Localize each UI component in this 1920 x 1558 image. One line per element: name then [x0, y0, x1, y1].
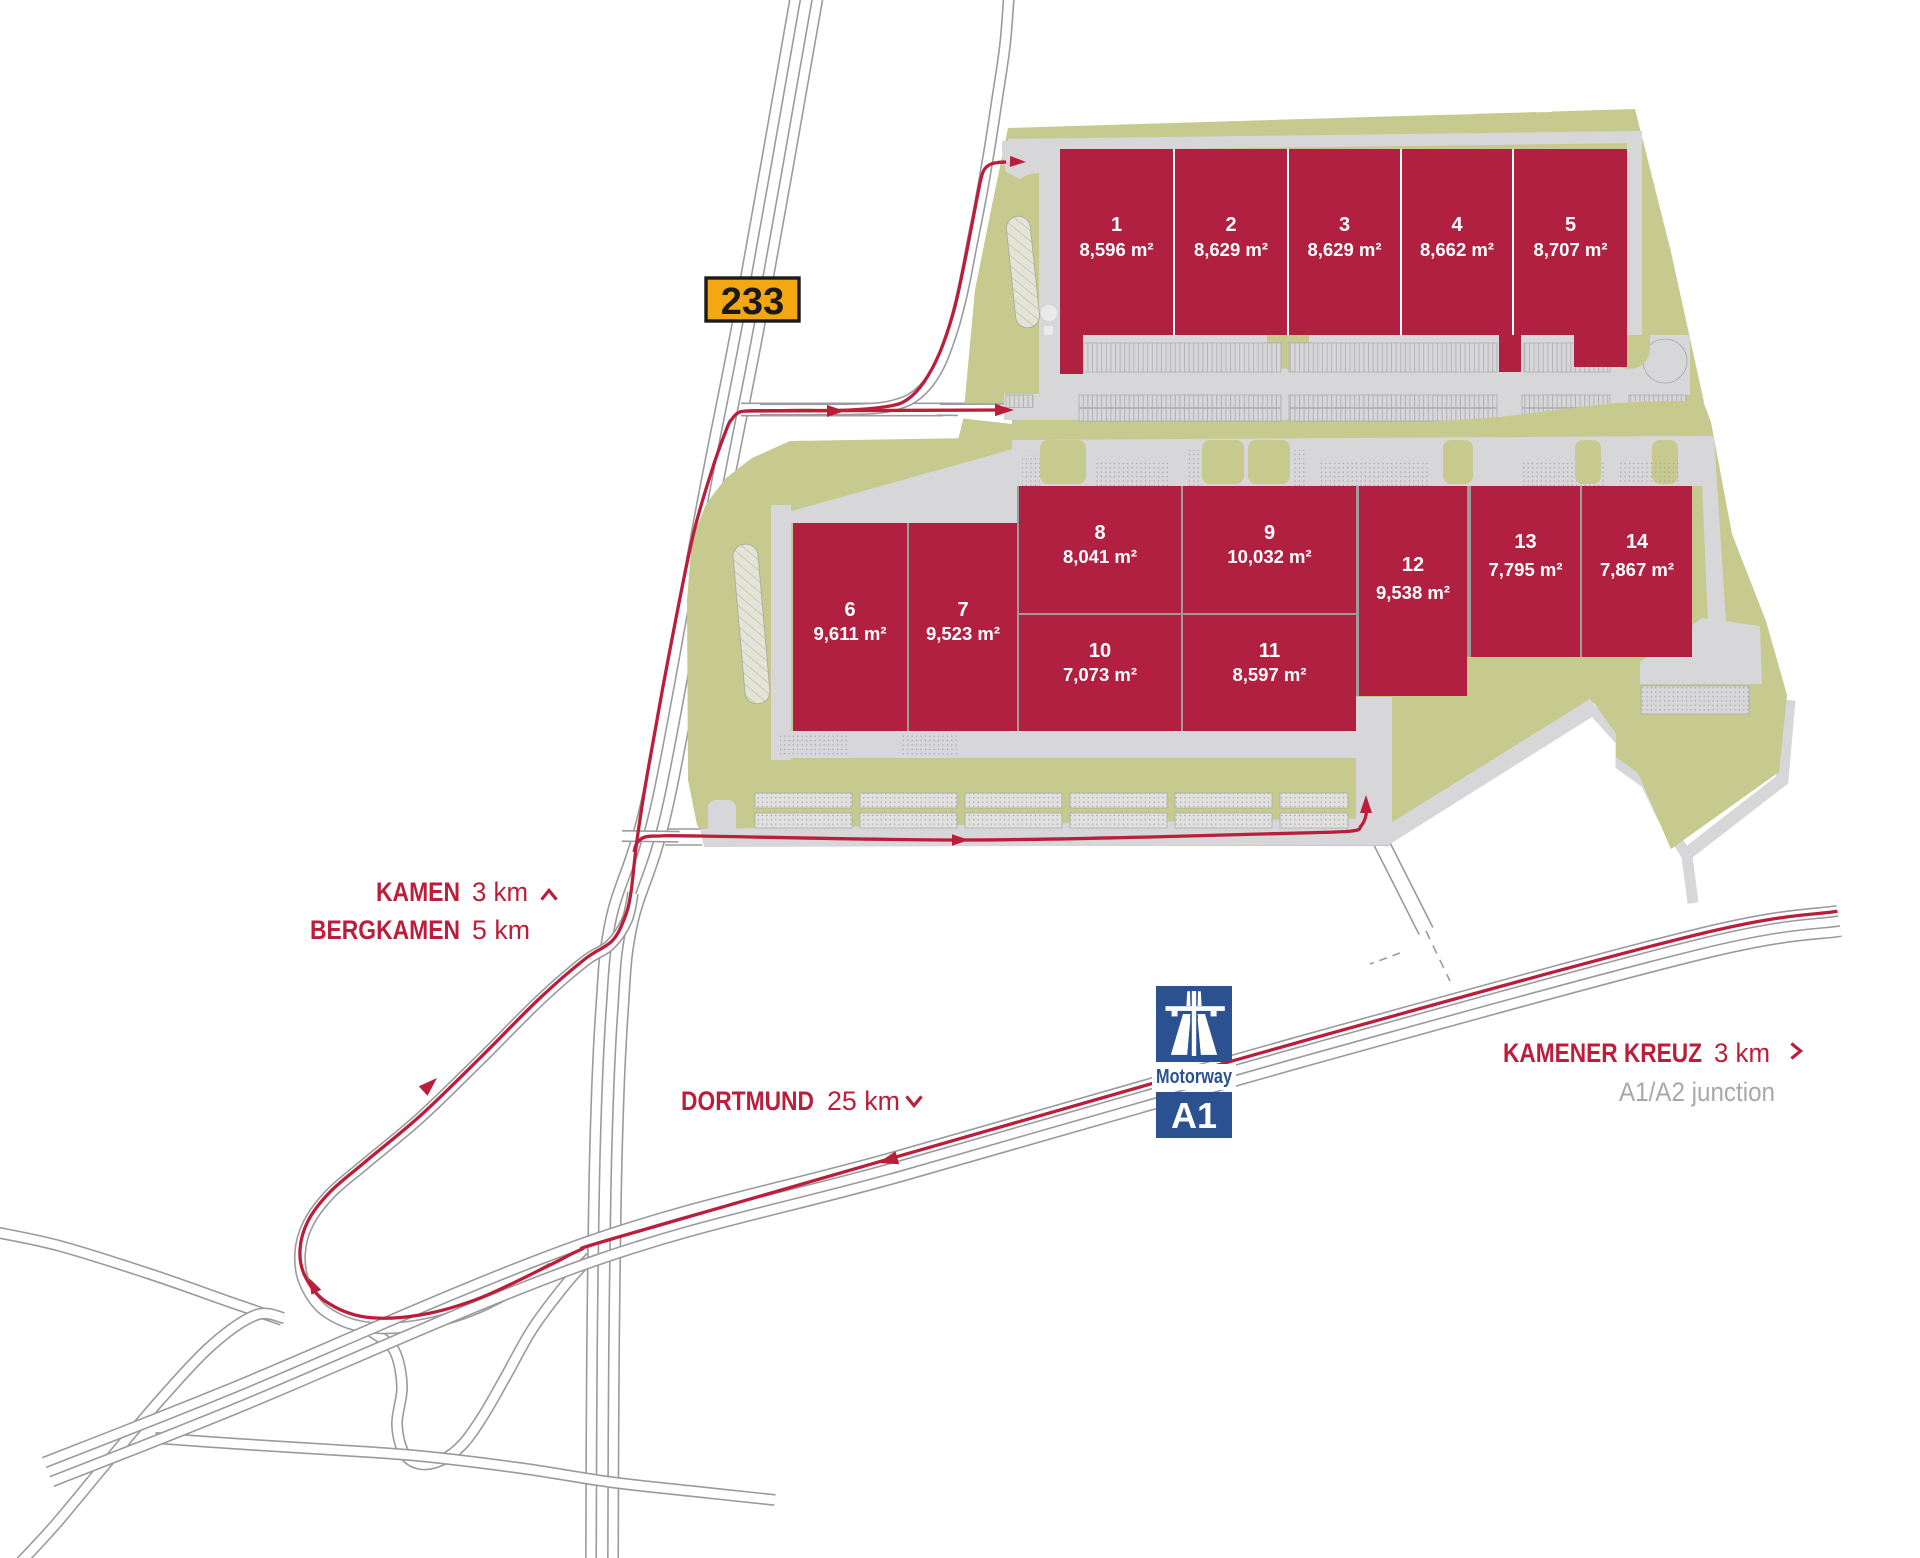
svg-text:3 km: 3 km: [472, 877, 528, 907]
svg-text:Motorway: Motorway: [1156, 1066, 1233, 1088]
svg-text:9,523 m²: 9,523 m²: [926, 623, 1000, 644]
svg-text:2: 2: [1225, 214, 1236, 236]
svg-text:1: 1: [1111, 214, 1122, 236]
svg-text:7,795 m²: 7,795 m²: [1488, 559, 1562, 580]
svg-text:25 km: 25 km: [827, 1086, 900, 1116]
svg-text:4: 4: [1451, 214, 1463, 236]
svg-text:9,611 m²: 9,611 m²: [813, 623, 886, 644]
svg-text:8,596 m²: 8,596 m²: [1079, 239, 1153, 260]
svg-text:233: 233: [721, 281, 784, 323]
svg-text:14: 14: [1626, 531, 1649, 553]
svg-text:6: 6: [844, 599, 855, 621]
svg-text:8,041 m²: 8,041 m²: [1063, 546, 1137, 567]
svg-text:KAMENER KREUZ: KAMENER KREUZ: [1503, 1038, 1702, 1068]
svg-text:7,073 m²: 7,073 m²: [1063, 664, 1137, 685]
svg-text:KAMEN: KAMEN: [376, 877, 460, 907]
svg-text:9: 9: [1264, 522, 1275, 544]
svg-text:7: 7: [957, 599, 968, 621]
svg-text:8,662 m²: 8,662 m²: [1420, 239, 1494, 260]
svg-text:9,538 m²: 9,538 m²: [1376, 582, 1450, 603]
svg-text:10,032 m²: 10,032 m²: [1227, 546, 1311, 567]
svg-text:7,867 m²: 7,867 m²: [1600, 559, 1674, 580]
svg-text:8,597 m²: 8,597 m²: [1232, 664, 1306, 685]
svg-text:5 km: 5 km: [472, 915, 530, 945]
svg-text:3 km: 3 km: [1714, 1038, 1770, 1068]
svg-text:5: 5: [1565, 214, 1576, 236]
svg-text:8,629 m²: 8,629 m²: [1307, 239, 1381, 260]
svg-text:8,707 m²: 8,707 m²: [1533, 239, 1607, 260]
svg-text:A1/A2 junction: A1/A2 junction: [1619, 1077, 1775, 1107]
svg-text:11: 11: [1259, 640, 1280, 662]
svg-text:12: 12: [1402, 554, 1424, 576]
svg-text:8,629 m²: 8,629 m²: [1194, 239, 1268, 260]
svg-text:BERGKAMEN: BERGKAMEN: [310, 915, 460, 945]
svg-text:A1: A1: [1171, 1095, 1217, 1136]
svg-text:10: 10: [1089, 640, 1111, 662]
svg-text:3: 3: [1339, 214, 1350, 236]
svg-text:DORTMUND: DORTMUND: [681, 1086, 814, 1116]
svg-text:13: 13: [1514, 531, 1536, 553]
svg-text:8: 8: [1094, 522, 1105, 544]
